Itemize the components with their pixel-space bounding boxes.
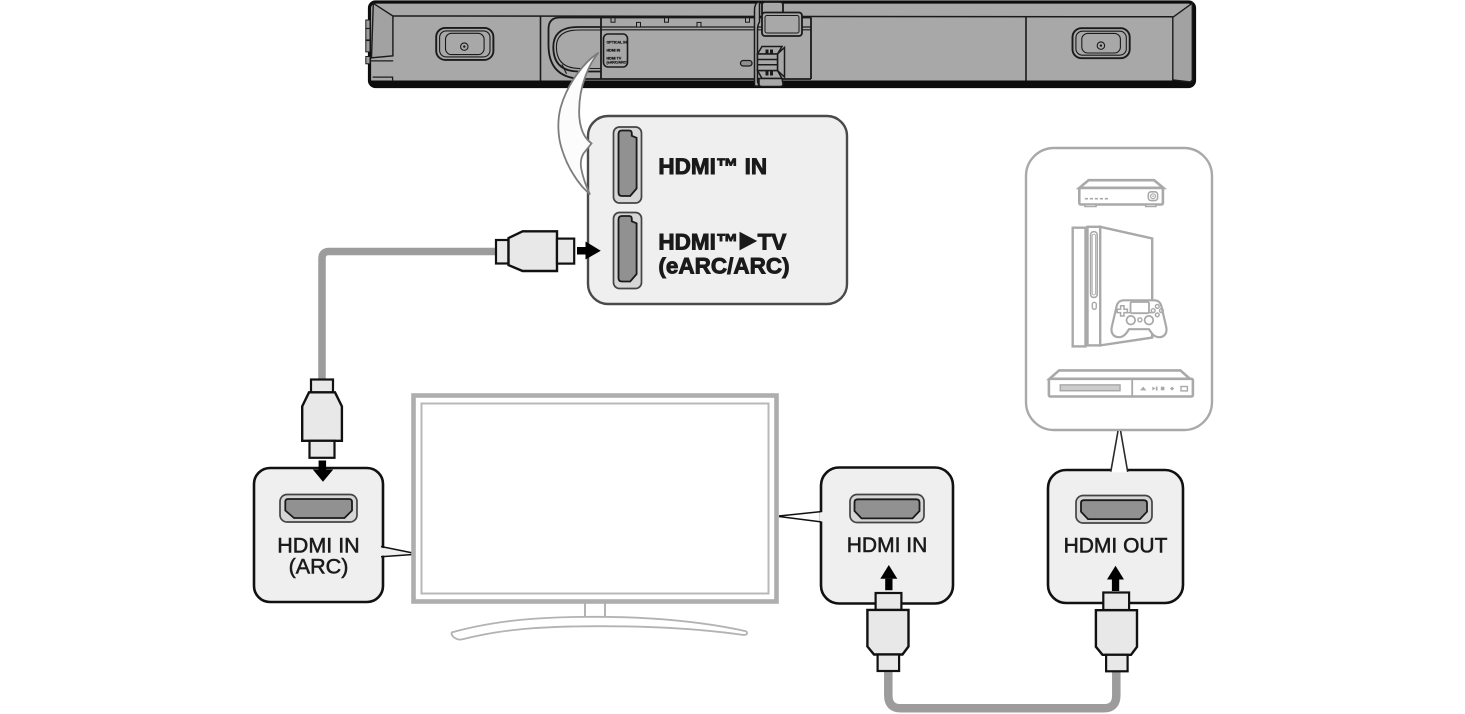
svg-text:HDMI™ IN: HDMI™ IN xyxy=(658,154,767,179)
svg-text:(eARC/ARC): (eARC/ARC) xyxy=(607,61,629,65)
svg-text:OPTICAL IN: OPTICAL IN xyxy=(607,41,628,45)
svg-text:(ARC): (ARC) xyxy=(289,555,349,579)
svg-text:HDMI IN: HDMI IN xyxy=(847,534,928,557)
svg-text:(eARC/ARC): (eARC/ARC) xyxy=(658,254,789,279)
svg-text:HDMI OUT: HDMI OUT xyxy=(1064,534,1168,557)
svg-text:HDMI IN: HDMI IN xyxy=(607,49,621,53)
svg-text:TV: TV xyxy=(758,229,787,254)
svg-text:HDMI™: HDMI™ xyxy=(658,229,738,254)
